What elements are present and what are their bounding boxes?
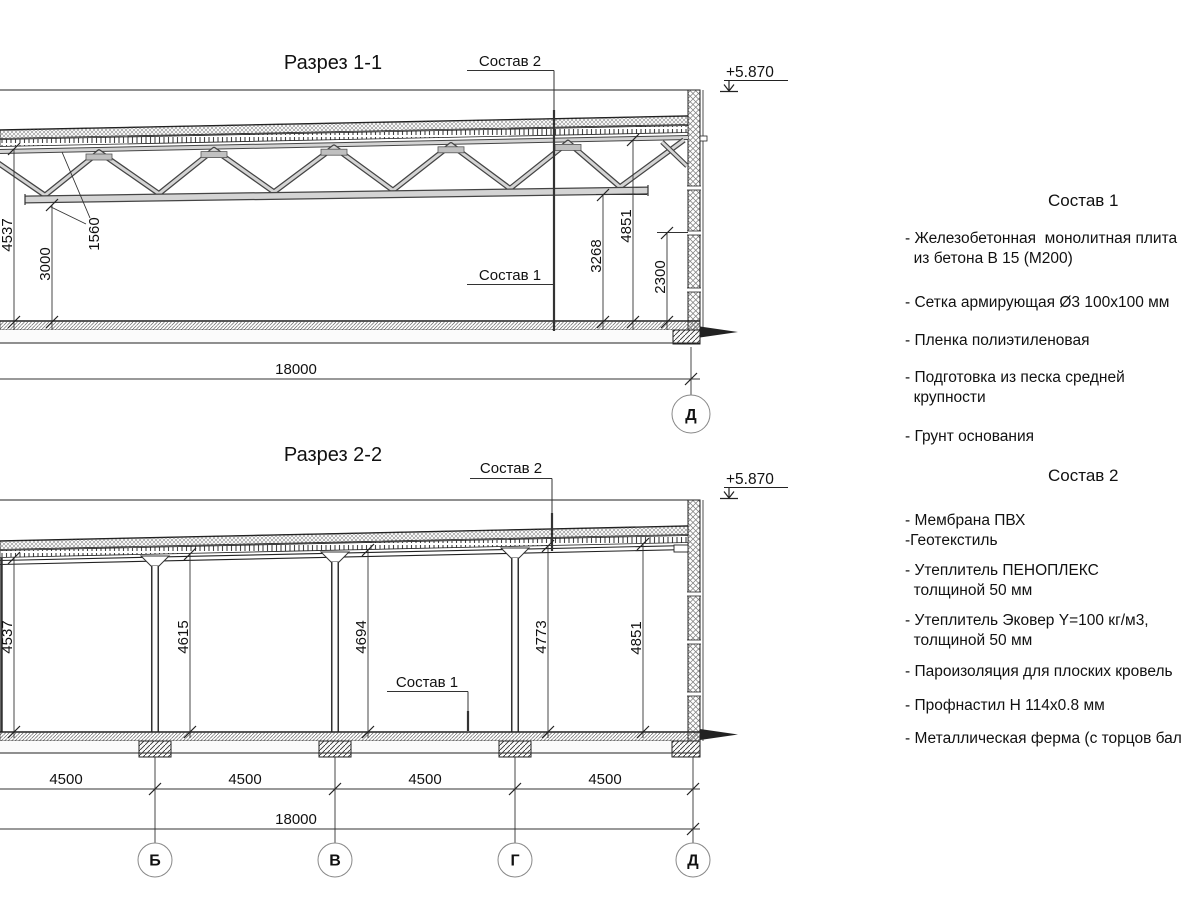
wall [687, 90, 707, 331]
span-4: 4500 [588, 771, 621, 788]
dim-ticks-2 [8, 538, 649, 738]
wall-bracket [700, 136, 707, 141]
total-dimension: 18000 Д [0, 347, 710, 433]
materials1-item: - Подготовка из песка средней крупности [905, 368, 1200, 408]
axis-label-d2: Д [687, 853, 699, 870]
dim-3000: 3000 [37, 247, 54, 280]
blueprint-canvas: Разрез 1-1 [0, 0, 1200, 900]
axis-label-b: Б [149, 853, 161, 870]
materials1-item: - Пленка полиэтиленовая [905, 331, 1200, 351]
dim2-18000: 18000 [275, 811, 317, 828]
dim-3268: 3268 [588, 239, 605, 272]
height-dimensions-2: 4537 4615 4694 4773 4851 [0, 538, 649, 738]
roof-deck-2 [0, 526, 688, 565]
grade-wedge-2 [700, 729, 738, 740]
section-2-2-drawing: Разрез 2-2 [0, 444, 788, 877]
dim2-4851: 4851 [628, 621, 645, 654]
dim2-4694: 4694 [353, 620, 370, 653]
dim2-4537: 4537 [0, 620, 16, 653]
span-3: 4500 [408, 771, 441, 788]
callout-sostav2: Состав 2 [479, 53, 541, 70]
materials2-item: - Мембрана ПВХ -Геотекстиль [905, 511, 1200, 551]
column-v [321, 552, 349, 732]
elevation-value-2: +5.870 [726, 471, 774, 488]
callout-leaders-2: Состав 2 Состав 1 [387, 460, 552, 731]
section-1-1-drawing: Разрез 1-1 [0, 52, 788, 433]
sections-drawing: Разрез 1-1 [0, 0, 1200, 900]
materials1-item: - Грунт основания [905, 427, 1200, 447]
axis-label-d: Д [685, 407, 697, 424]
materials2-item: - Профнастил Н 114х0.8 мм [905, 696, 1200, 716]
span-dimensions: 4500 4500 4500 4500 18000 [0, 771, 700, 835]
column-g [501, 548, 529, 732]
vertical-dimensions: 4537 1560 3000 3268 4851 2300 [0, 134, 688, 330]
materials1-title: Состав 1 [1048, 191, 1119, 211]
elevation-mark-2: +5.870 [720, 471, 788, 499]
axis-label-g: Г [510, 853, 519, 870]
callout-sostav1: Состав 1 [479, 267, 541, 284]
span-1: 4500 [49, 771, 82, 788]
span-2: 4500 [228, 771, 261, 788]
foundation-block [673, 330, 700, 344]
beam-bearing [674, 545, 688, 552]
dim-1560: 1560 [86, 217, 103, 250]
grade-wedge [700, 327, 738, 338]
columns [2, 548, 530, 732]
roof-truss [0, 138, 688, 206]
dim-18000: 18000 [275, 361, 317, 378]
dim-4537: 4537 [0, 218, 16, 251]
materials1-item: - Железобетонная монолитная плита из бет… [905, 229, 1200, 269]
materials2-item: - Утеплитель ПЕНОПЛЕКС толщиной 50 мм [905, 561, 1200, 601]
materials1-item: - Сетка армирующая Ø3 100х100 мм [905, 293, 1200, 313]
section-2-2-title: Разрез 2-2 [284, 444, 382, 466]
callout-sostav2-2: Состав 2 [480, 460, 542, 477]
materials2-item: - Пароизоляция для плоских кровель [905, 662, 1200, 682]
materials2-item: - Утеплитель Эковер Y=100 кг/м3, толщино… [905, 611, 1200, 651]
column-b [141, 556, 169, 732]
dim-2300: 2300 [652, 260, 669, 293]
materials2-item: - Металлическая ферма (с торцов бал [905, 729, 1200, 749]
elevation-mark: +5.870 [720, 64, 788, 92]
section-1-1-title: Разрез 1-1 [284, 52, 382, 74]
dim2-4773: 4773 [533, 620, 550, 653]
dim-ticks [8, 134, 673, 328]
axis-label-v: В [329, 853, 341, 870]
elevation-value: +5.870 [726, 64, 774, 81]
materials2-title: Состав 2 [1048, 466, 1119, 486]
dim-4851: 4851 [618, 209, 635, 242]
dim2-4615: 4615 [175, 620, 192, 653]
wall-2 [687, 500, 703, 741]
floor-slab-2 [0, 729, 738, 757]
floor-slab [0, 321, 738, 344]
callout-sostav1-2: Состав 1 [396, 674, 458, 691]
